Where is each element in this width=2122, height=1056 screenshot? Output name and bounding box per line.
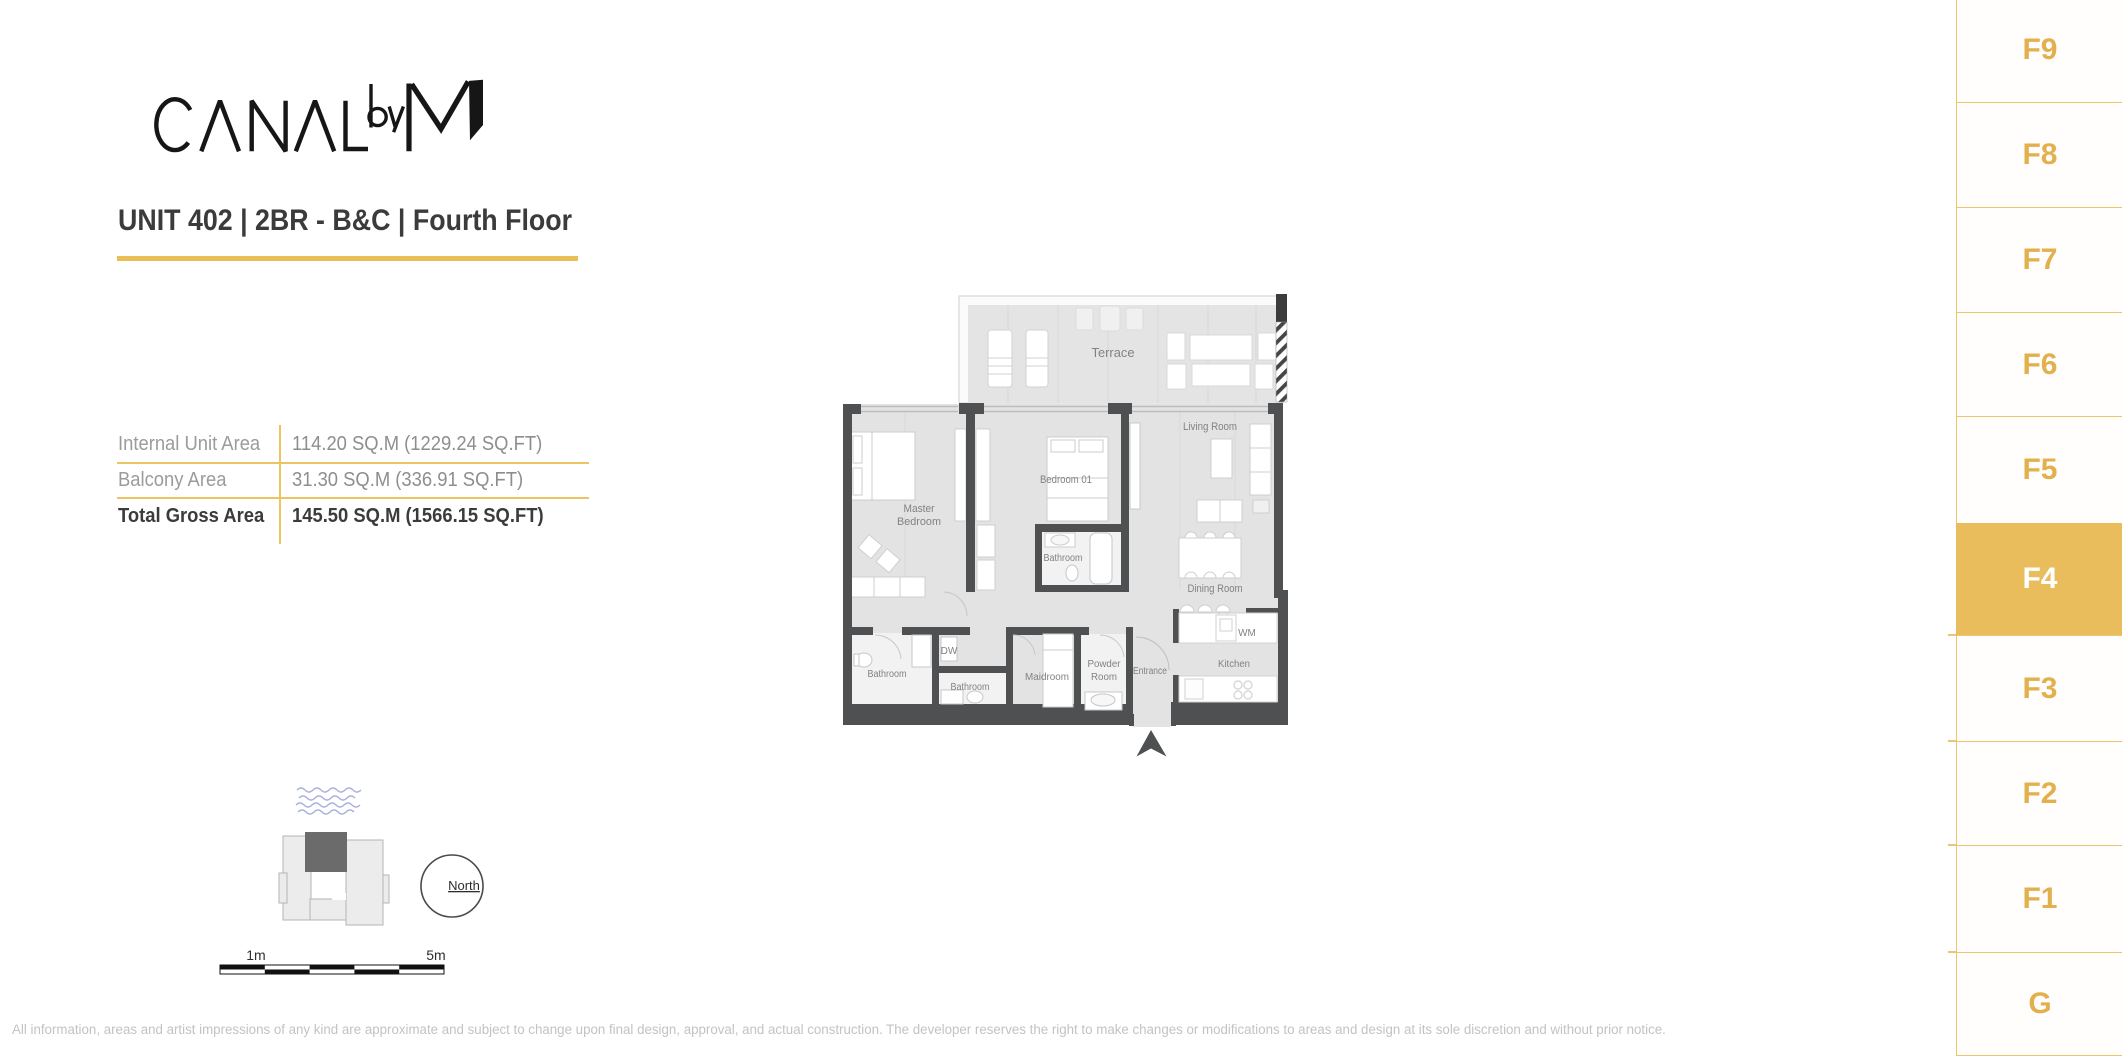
svg-text:Entrance: Entrance	[1133, 666, 1167, 677]
svg-text:Bathroom: Bathroom	[868, 669, 907, 680]
svg-text:DW: DW	[941, 646, 958, 657]
svg-text:Terrace: Terrace	[1092, 346, 1135, 360]
svg-text:Living Room: Living Room	[1183, 421, 1237, 433]
svg-text:Room: Room	[1091, 672, 1117, 683]
svg-text:5m: 5m	[426, 947, 445, 963]
svg-text:Bedroom 01: Bedroom 01	[1040, 474, 1092, 486]
svg-text:Bathroom: Bathroom	[1044, 553, 1083, 564]
svg-text:Kitchen: Kitchen	[1218, 659, 1250, 670]
svg-text:Dining Room: Dining Room	[1188, 583, 1243, 595]
svg-text:Bathroom: Bathroom	[951, 682, 990, 693]
svg-text:North: North	[448, 878, 480, 893]
svg-text:Master: Master	[904, 503, 935, 515]
svg-text:WM: WM	[1238, 628, 1256, 639]
svg-text:1m: 1m	[246, 947, 265, 963]
svg-text:Bedroom: Bedroom	[897, 516, 941, 528]
svg-text:Powder: Powder	[1088, 659, 1122, 670]
svg-text:Maidroom: Maidroom	[1025, 672, 1069, 683]
